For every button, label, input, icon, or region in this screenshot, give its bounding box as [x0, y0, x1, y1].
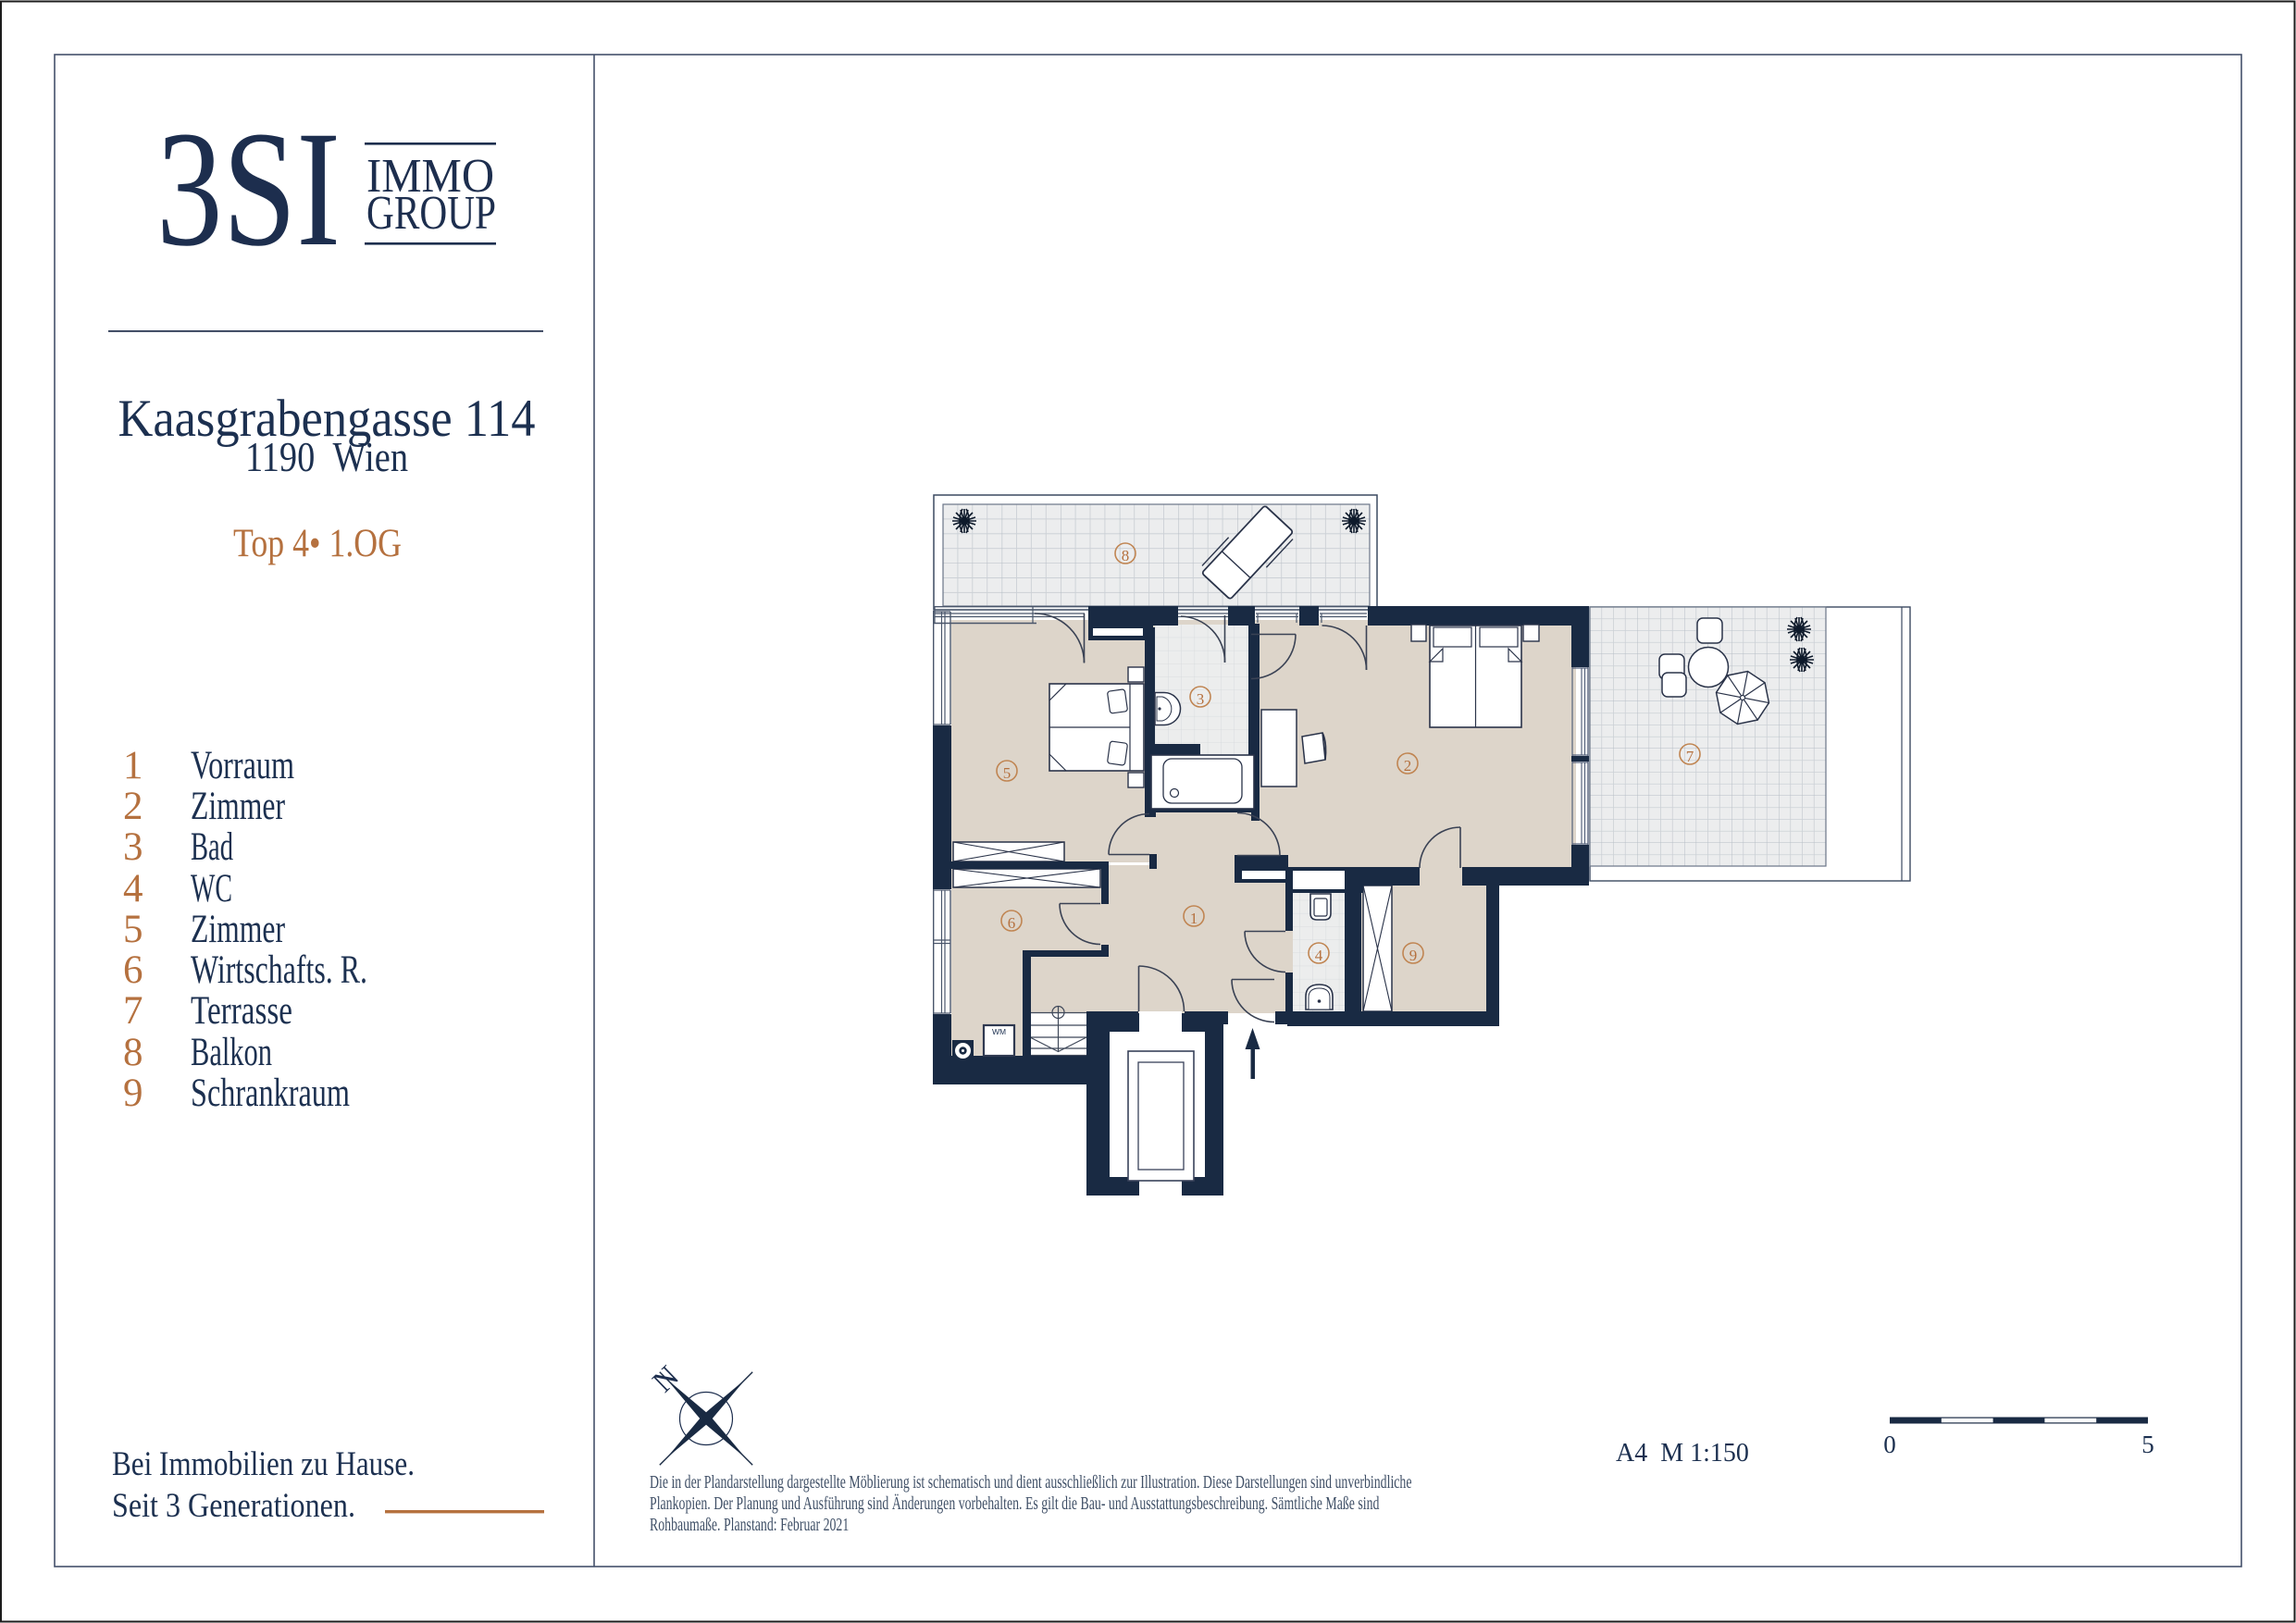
svg-text:8: 8 — [1122, 547, 1130, 564]
svg-text:Vorraum: Vorraum — [191, 744, 294, 787]
svg-text:6: 6 — [123, 948, 143, 992]
svg-text:8: 8 — [123, 1031, 143, 1074]
svg-text:Zimmer: Zimmer — [191, 785, 285, 828]
svg-text:1190 Wien: 1190 Wien — [245, 434, 408, 480]
svg-text:Wirtschafts. R.: Wirtschafts. R. — [191, 948, 367, 992]
svg-text:Zimmer: Zimmer — [191, 908, 285, 951]
svg-text:A4 M 1:150: A4 M 1:150 — [1616, 1439, 1749, 1468]
svg-text:1: 1 — [1190, 910, 1198, 927]
svg-text:WM: WM — [992, 1027, 1006, 1036]
svg-text:7: 7 — [1686, 748, 1694, 765]
svg-text:Bad: Bad — [191, 825, 233, 869]
svg-text:Die in der Plandarstellung dar: Die in der Plandarstellung dargestellte … — [650, 1472, 1412, 1493]
svg-text:1: 1 — [123, 744, 143, 787]
svg-text:Schrankraum: Schrankraum — [191, 1072, 350, 1115]
svg-text:Balkon: Balkon — [191, 1031, 272, 1074]
svg-text:5: 5 — [2141, 1431, 2154, 1458]
svg-text:Plankopien. Der Planung und Au: Plankopien. Der Planung und Ausführung s… — [650, 1493, 1380, 1514]
svg-text:5: 5 — [123, 908, 143, 951]
svg-text:3: 3 — [1197, 690, 1205, 708]
svg-text:Rohbaumaße. Planstand: Februar: Rohbaumaße. Planstand: Februar 2021 — [650, 1515, 849, 1535]
svg-text:5: 5 — [1003, 764, 1011, 782]
svg-text:Bei Immobilien zu Hause.: Bei Immobilien zu Hause. — [112, 1444, 415, 1482]
svg-text:4: 4 — [123, 867, 143, 911]
svg-text:9: 9 — [1409, 947, 1418, 964]
svg-text:3: 3 — [123, 825, 143, 869]
svg-text:2: 2 — [1404, 757, 1412, 774]
svg-text:Terrasse: Terrasse — [191, 989, 292, 1033]
svg-text:GROUP: GROUP — [366, 187, 496, 240]
svg-text:0: 0 — [1883, 1431, 1896, 1458]
svg-text:4: 4 — [1315, 947, 1323, 964]
svg-text:2: 2 — [123, 785, 143, 828]
svg-text:WC: WC — [191, 867, 232, 911]
svg-text:9: 9 — [123, 1072, 143, 1115]
svg-text:Seit 3 Generationen.: Seit 3 Generationen. — [112, 1486, 355, 1524]
svg-text:7: 7 — [123, 989, 143, 1033]
svg-text:3SI: 3SI — [156, 96, 341, 280]
svg-text:6: 6 — [1008, 914, 1016, 932]
svg-text:Top 4• 1.OG: Top 4• 1.OG — [233, 522, 402, 565]
